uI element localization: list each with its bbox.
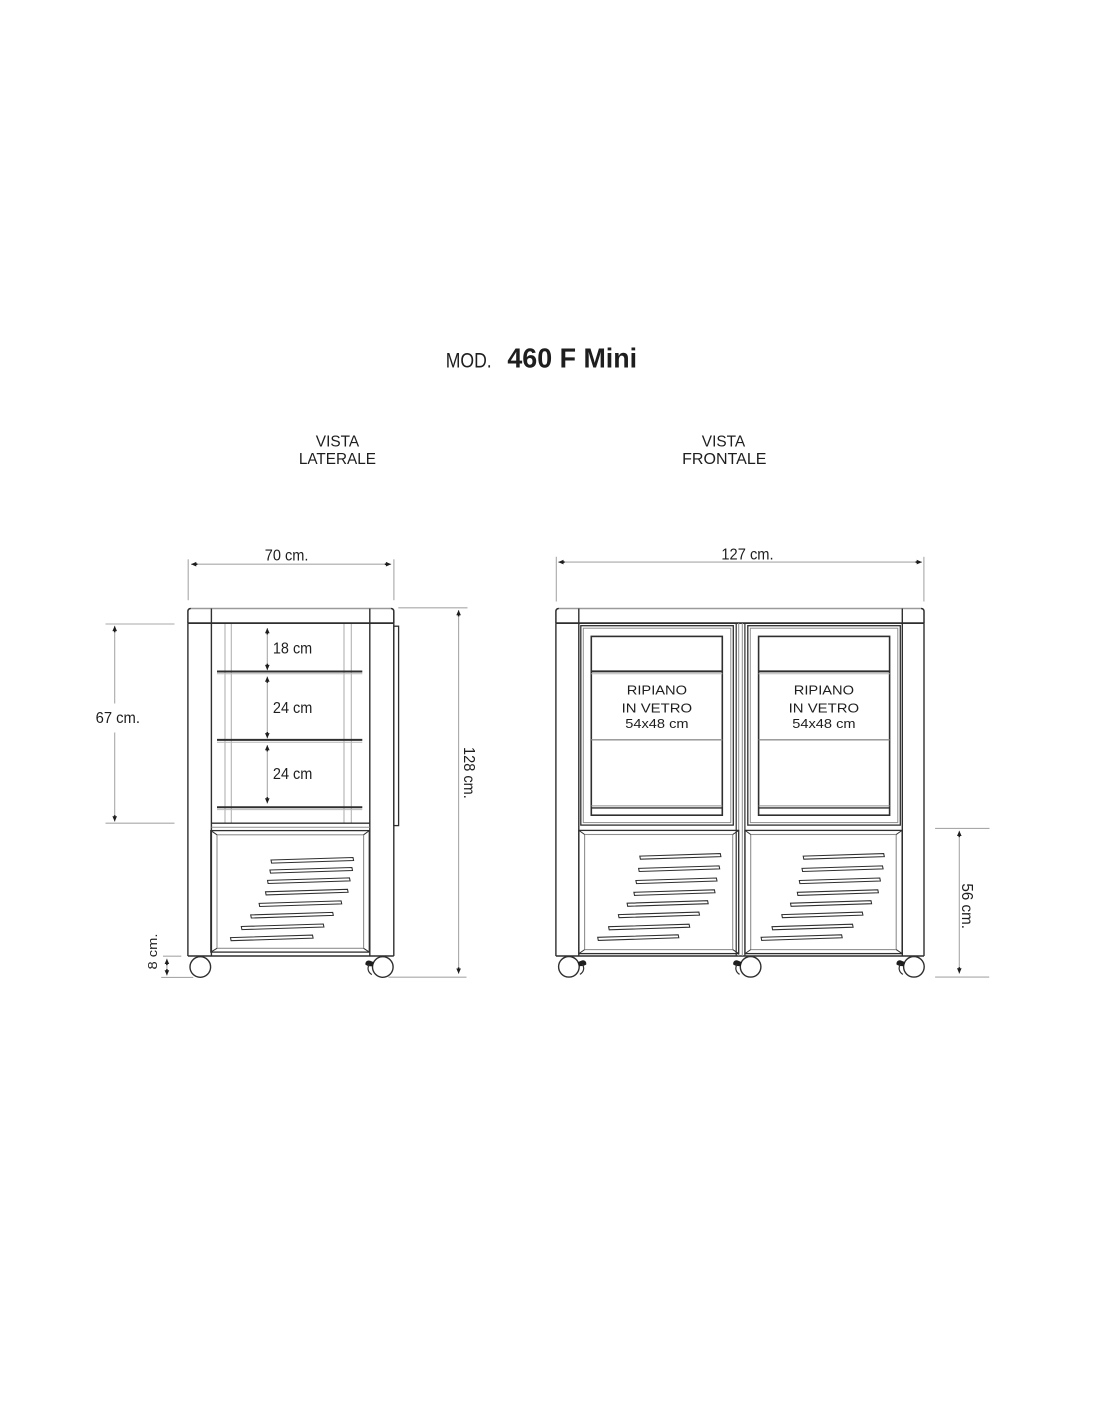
svg-text:56 cm.: 56 cm. <box>958 883 975 929</box>
svg-text:IN VETRO: IN VETRO <box>622 700 693 715</box>
svg-text:RIPIANO: RIPIANO <box>794 682 854 697</box>
svg-text:VISTA: VISTA <box>702 433 746 450</box>
svg-text:54x48 cm: 54x48 cm <box>792 716 855 731</box>
svg-text:67 cm.: 67 cm. <box>96 710 140 727</box>
svg-text:RIPIANO: RIPIANO <box>627 682 687 697</box>
svg-text:VISTA: VISTA <box>316 433 360 450</box>
svg-text:128 cm.: 128 cm. <box>460 747 477 799</box>
svg-text:FRONTALE: FRONTALE <box>682 451 766 468</box>
svg-text:460 F Mini: 460 F Mini <box>507 342 637 373</box>
svg-text:MOD.: MOD. <box>446 349 492 372</box>
svg-text:54x48 cm: 54x48 cm <box>625 716 688 731</box>
svg-text:LATERALE: LATERALE <box>299 451 376 468</box>
svg-text:70 cm.: 70 cm. <box>265 548 309 565</box>
svg-text:127 cm.: 127 cm. <box>721 547 773 564</box>
svg-text:24 cm: 24 cm <box>273 766 313 783</box>
svg-text:IN VETRO: IN VETRO <box>789 700 860 715</box>
svg-text:24 cm: 24 cm <box>273 700 313 717</box>
svg-text:18 cm: 18 cm <box>273 641 312 658</box>
svg-text:8 cm.: 8 cm. <box>145 934 160 970</box>
